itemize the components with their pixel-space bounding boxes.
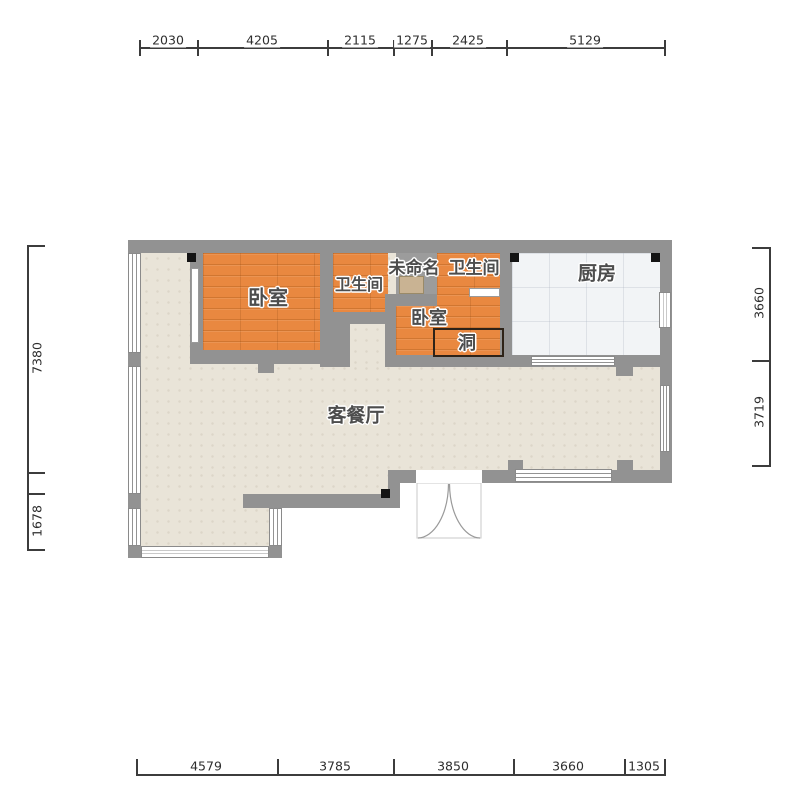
- window-balcony-right: [269, 508, 282, 546]
- dim-tick: [136, 759, 138, 776]
- bedroom1-door-strip: [191, 268, 199, 343]
- corner-marker-kitchen-left: [510, 253, 519, 262]
- wall-stub-kitchen: [616, 367, 633, 376]
- dim-tick: [752, 247, 771, 249]
- wall-block-left-mid: [128, 352, 141, 366]
- dim-tick: [752, 360, 771, 362]
- dim-bottom-2: 3785: [317, 759, 353, 774]
- dim-tick: [277, 759, 279, 776]
- wall-block-left-low: [128, 494, 141, 508]
- dim-bottom-1: 4579: [188, 759, 224, 774]
- wall-stub-bedroom1: [258, 364, 274, 373]
- room-label-hole: 洞: [458, 329, 476, 355]
- dim-tick: [27, 245, 45, 247]
- wall-niche-left: [320, 324, 350, 367]
- wall-bathroom1-bottom: [333, 312, 388, 324]
- dim-tick: [664, 40, 666, 56]
- room-label-kitchen: 厨房: [578, 259, 616, 286]
- dim-left-1: 7380: [30, 340, 45, 376]
- unnamed-room-fixture: [399, 276, 424, 294]
- living-room-floor-lower: [141, 470, 400, 494]
- dim-right-2: 3719: [752, 394, 767, 430]
- wall-block-left-bottom: [128, 546, 141, 558]
- bathroom2-sill: [469, 288, 500, 297]
- entry-door-opening: [416, 470, 482, 483]
- wall-top: [130, 240, 672, 253]
- room-label-bathroom-2: 卫生间: [449, 254, 500, 279]
- dim-top-6: 5129: [567, 33, 603, 48]
- wall-block-balcony-top: [269, 494, 282, 508]
- room-label-bedroom-2: 卧室: [411, 304, 447, 330]
- corner-marker-kitchen-right: [651, 253, 660, 262]
- window-left-lower: [128, 508, 141, 546]
- room-label-living: 客餐厅: [327, 401, 384, 428]
- dim-top-5: 2425: [450, 33, 486, 48]
- room-label-bedroom-1: 卧室: [248, 282, 288, 311]
- room-label-unnamed: 未命名: [389, 254, 440, 279]
- dim-tick: [513, 759, 515, 776]
- window-kitchen-right: [659, 292, 671, 328]
- dim-tick: [27, 493, 45, 495]
- dim-tick: [27, 549, 45, 551]
- dim-tick: [752, 465, 771, 467]
- window-balcony-bottom: [141, 546, 269, 558]
- dim-top-1: 2030: [150, 33, 186, 48]
- window-living-bottom: [515, 469, 612, 482]
- dim-bottom-3: 3850: [435, 759, 471, 774]
- kitchen-pass-opening: [531, 356, 615, 366]
- wall-block-balcony-corner: [269, 546, 282, 558]
- dim-top-2: 4205: [244, 33, 280, 48]
- window-left-middle: [128, 366, 141, 494]
- dim-tick: [393, 759, 395, 776]
- dim-tick: [197, 40, 199, 56]
- dimension-right-line: [769, 247, 771, 467]
- dim-right-1: 3660: [752, 285, 767, 321]
- window-living-right: [660, 385, 670, 452]
- dim-tick: [27, 472, 45, 474]
- dim-left-2: 1678: [30, 503, 45, 539]
- corner-marker-bedroom1: [187, 253, 196, 262]
- window-left-upper: [128, 253, 141, 353]
- dim-tick: [327, 40, 329, 56]
- dim-top-3: 2115: [342, 33, 378, 48]
- dim-bottom-4: 3660: [550, 759, 586, 774]
- dimension-bottom-line: [136, 774, 666, 776]
- corner-marker-entry: [381, 489, 390, 498]
- room-label-bathroom-1: 卫生间: [335, 271, 383, 295]
- dim-tick: [431, 40, 433, 56]
- floorplan-canvas: 卧室 卫生间 未命名 卫生间 厨房 卧室 洞 客餐厅 2030 4205 211…: [0, 0, 800, 800]
- dim-tick: [664, 759, 666, 776]
- dim-tick: [506, 40, 508, 56]
- wall-block-left-top: [128, 240, 141, 253]
- wall-step: [243, 494, 400, 508]
- dim-top-4: 1275: [394, 33, 430, 48]
- dim-bottom-5: 1305: [626, 759, 662, 774]
- dim-tick: [139, 40, 141, 56]
- wall-stub-window-right: [617, 460, 633, 470]
- niche-floor: [350, 324, 385, 367]
